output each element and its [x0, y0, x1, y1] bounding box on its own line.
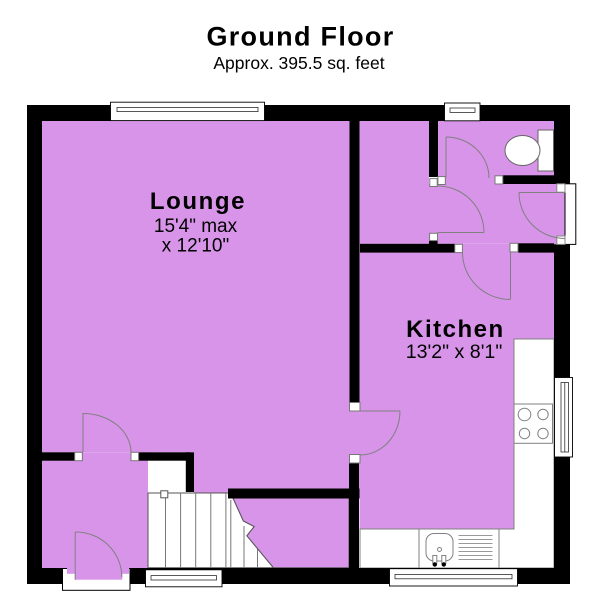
svg-text:Ground Floor: Ground Floor [206, 22, 394, 52]
svg-text:x 12'10": x 12'10" [162, 236, 229, 257]
svg-text:13'2" x 8'1": 13'2" x 8'1" [406, 341, 503, 363]
svg-text:Kitchen: Kitchen [406, 316, 505, 343]
svg-text:15'4" max: 15'4" max [154, 216, 238, 237]
svg-text:Lounge: Lounge [150, 188, 246, 215]
svg-text:Approx. 395.5 sq. feet: Approx. 395.5 sq. feet [213, 53, 384, 73]
